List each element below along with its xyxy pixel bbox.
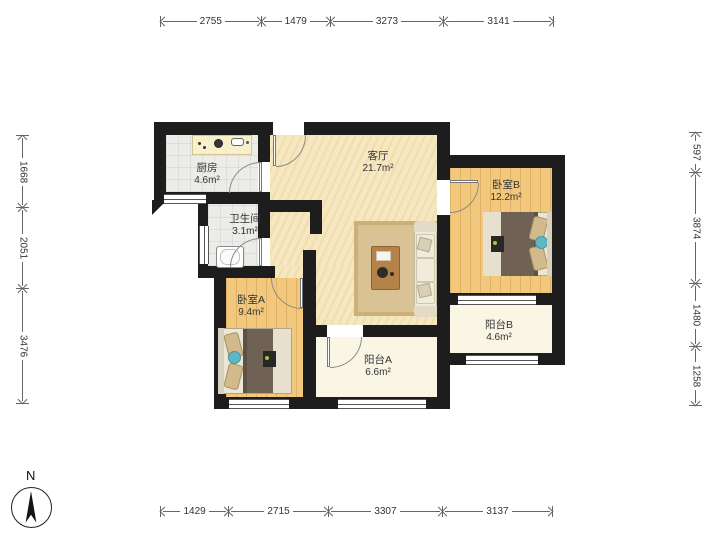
faucet-dot-icon xyxy=(246,141,249,144)
kitchen-window xyxy=(164,194,206,204)
balcony-a-window xyxy=(338,399,426,409)
dimension-segment: 1429 xyxy=(160,506,228,517)
dimension-arrow-start-icon xyxy=(228,507,238,517)
wall-bedroom-b-top xyxy=(450,155,565,168)
compass-north-label: N xyxy=(26,468,35,483)
dimension-segment: 1258 xyxy=(689,346,702,405)
dimension-arrow-start-icon xyxy=(691,132,701,142)
room-area: 4.6m² xyxy=(194,175,220,188)
dimension-segment: 3874 xyxy=(689,172,702,283)
room-area: 4.6m² xyxy=(485,332,513,345)
dimension-segment: 2755 xyxy=(160,16,261,27)
dimension-value: 1479 xyxy=(282,17,310,27)
room-name: 阳台B xyxy=(485,319,513,332)
dimension-value: 1480 xyxy=(691,301,701,329)
dimension-arrow-start-icon xyxy=(691,346,701,356)
room-label-kitchen: 厨房 4.6m² xyxy=(194,162,220,188)
wall-balcony-a-top-right xyxy=(363,325,443,337)
room-label-bedroom-a: 卧室A 9.4m² xyxy=(237,294,265,320)
dimension-arrow-start-icon xyxy=(260,17,270,27)
dimension-arrow-start-icon xyxy=(691,283,701,293)
dimension-arrow-start-icon xyxy=(18,135,28,145)
cup-dot-icon xyxy=(390,272,394,276)
room-area: 12.2m² xyxy=(490,192,521,205)
wall-bedroom-b-right xyxy=(552,155,565,365)
room-area: 21.7m² xyxy=(362,163,393,176)
dimension-arrow-start-icon xyxy=(160,507,170,517)
dimension-value: 2715 xyxy=(264,507,292,517)
dim-top: 2755147932733141 xyxy=(160,16,554,27)
room-name: 厨房 xyxy=(194,162,220,175)
dimension-segment: 3141 xyxy=(443,16,553,27)
bedroom-a-window xyxy=(229,399,289,409)
dimension-arrow-start-icon xyxy=(160,17,170,27)
room-name: 卧室B xyxy=(490,179,521,192)
room-name: 阳台A xyxy=(364,354,392,367)
room-area: 3.1m² xyxy=(229,226,261,239)
dim-left: 166820513476 xyxy=(16,135,29,404)
dimension-value: 1258 xyxy=(691,362,701,390)
sofa-armrest-bottom xyxy=(414,306,437,317)
dimension-segment: 1668 xyxy=(16,135,29,207)
dimension-value: 3137 xyxy=(483,507,511,517)
table-tray xyxy=(376,251,391,261)
dimension-arrow-start-icon xyxy=(327,507,337,517)
dimension-value: 3476 xyxy=(18,332,28,360)
dimension-arrow-start-icon xyxy=(329,17,339,27)
dimension-arrow-start-icon xyxy=(691,171,701,181)
room-area: 9.4m² xyxy=(237,307,265,320)
wall-kitchen-right xyxy=(258,122,270,162)
sink-icon xyxy=(231,138,244,146)
dimension-value: 597 xyxy=(691,141,701,164)
room-name: 卫生间 xyxy=(229,213,261,226)
burner-icon xyxy=(214,139,223,148)
room-name: 卧室A xyxy=(237,294,265,307)
dimension-arrow-start-icon xyxy=(18,288,28,298)
sofa-cushion xyxy=(416,258,435,282)
bedroom-a-threshold xyxy=(275,266,304,278)
dimension-arrow-start-icon xyxy=(18,207,28,217)
wall-top-right xyxy=(304,122,450,135)
wall-top-left xyxy=(154,122,273,135)
dimension-value: 2051 xyxy=(18,234,28,262)
dimension-arrow-start-icon xyxy=(443,17,453,27)
dimension-arrow-start-icon xyxy=(442,507,452,517)
dimension-segment: 1479 xyxy=(261,16,330,27)
dimension-value: 2755 xyxy=(197,17,225,27)
dimension-arrow-end-icon xyxy=(691,397,701,407)
balcony-b-window xyxy=(466,355,538,365)
dimension-value: 3141 xyxy=(484,17,512,27)
dimension-segment: 3307 xyxy=(328,506,442,517)
dimension-value: 3874 xyxy=(691,214,701,242)
bed-b-tv-light xyxy=(493,241,497,245)
room-name: 客厅 xyxy=(362,150,393,163)
floor-plan-canvas: 2755147932733141 1429271533073137 166820… xyxy=(0,0,720,540)
dimension-arrow-end-icon xyxy=(544,507,554,517)
room-label-living-room: 客厅 21.7m² xyxy=(362,150,393,176)
bed-a-round-pillow xyxy=(228,351,241,364)
room-label-bathroom: 卫生间 3.1m² xyxy=(229,213,261,239)
dimension-segment: 2715 xyxy=(228,506,328,517)
wall-balcony-a-top-left xyxy=(303,325,327,337)
dimension-segment: 3137 xyxy=(442,506,552,517)
room-label-bedroom-b: 卧室B 12.2m² xyxy=(490,179,521,205)
room-label-balcony-b: 阳台B 4.6m² xyxy=(485,319,513,345)
dimension-segment: 3273 xyxy=(330,16,443,27)
bathroom-window xyxy=(199,226,209,264)
dimension-value: 1429 xyxy=(180,507,208,517)
dimension-segment: 1480 xyxy=(689,283,702,346)
dimension-segment: 2051 xyxy=(16,207,29,288)
spice-dots-icon xyxy=(198,142,201,145)
kettle-icon xyxy=(377,267,388,278)
sofa-pillow xyxy=(417,283,432,298)
dimension-arrow-end-icon xyxy=(18,395,28,405)
bed-b-headboard xyxy=(547,212,552,276)
dimension-value: 1668 xyxy=(18,158,28,186)
bed-a-tv-light xyxy=(265,356,269,360)
dimension-segment: 3476 xyxy=(16,288,29,403)
room-area: 6.6m² xyxy=(364,367,392,380)
room-label-balcony-a: 阳台A 6.6m² xyxy=(364,354,392,380)
dimension-value: 3307 xyxy=(371,507,399,517)
wall-living-right-lower xyxy=(437,215,450,409)
dimension-arrow-end-icon xyxy=(545,17,555,27)
dimension-value: 3273 xyxy=(373,17,401,27)
bedroom-b-balcony-window xyxy=(458,295,536,305)
wall-living-right-upper xyxy=(437,122,450,180)
wall-hall-stub-v xyxy=(310,200,322,234)
dimension-segment: 597 xyxy=(689,132,702,172)
sofa-armrest-top xyxy=(414,221,437,232)
dim-bottom: 1429271533073137 xyxy=(160,506,553,517)
dim-right: 597387414801258 xyxy=(689,132,702,406)
